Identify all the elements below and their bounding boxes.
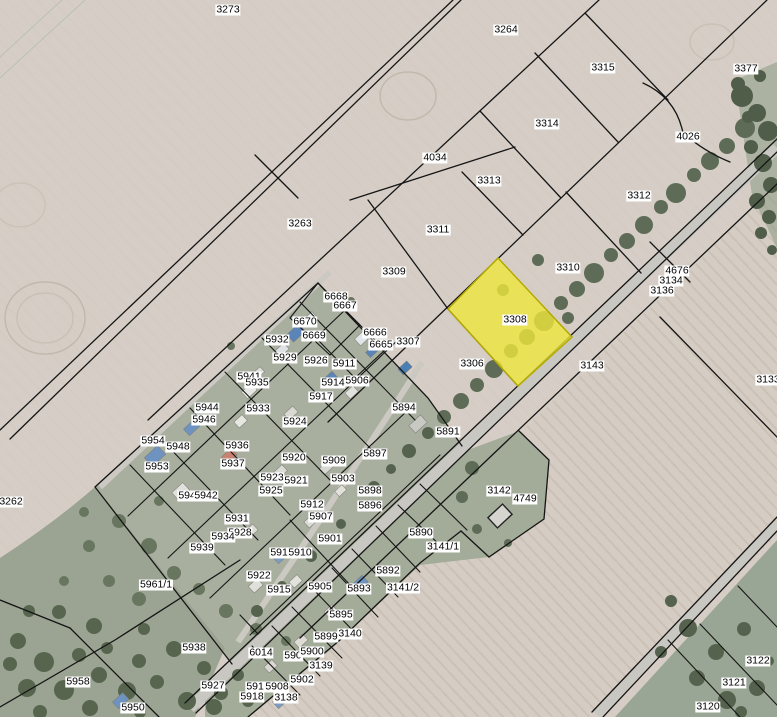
parcel-label-5895[interactable]: 5895	[328, 610, 353, 621]
parcel-label-5961/1[interactable]: 5961/1	[139, 580, 173, 591]
parcel-label-5946[interactable]: 5946	[191, 415, 216, 426]
parcel-label-5917[interactable]: 5917	[308, 392, 333, 403]
parcel-label-3141/1[interactable]: 3141/1	[426, 542, 460, 553]
parcel-label-4026[interactable]: 4026	[675, 132, 700, 143]
parcel-label-6669[interactable]: 6669	[301, 331, 326, 342]
parcel-label-3306[interactable]: 3306	[459, 359, 484, 370]
parcel-label-5903[interactable]: 5903	[330, 474, 355, 485]
parcel-label-5893[interactable]: 5893	[346, 584, 371, 595]
parcel-label-3307[interactable]: 3307	[395, 337, 420, 348]
parcel-label-5892[interactable]: 5892	[375, 566, 400, 577]
parcel-label-5950[interactable]: 5950	[120, 703, 145, 714]
parcel-label-3312[interactable]: 3312	[626, 191, 651, 202]
parcel-label-5905[interactable]: 5905	[307, 582, 332, 593]
parcel-label-3310[interactable]: 3310	[555, 263, 580, 274]
parcel-label-5953[interactable]: 5953	[144, 462, 169, 473]
parcel-label-3133[interactable]: 3133	[755, 375, 777, 386]
parcel-label-3273[interactable]: 3273	[215, 5, 240, 16]
parcel-label-5901[interactable]: 5901	[317, 534, 342, 545]
parcel-label-3314[interactable]: 3314	[534, 119, 559, 130]
parcel-label-5909[interactable]: 5909	[321, 456, 346, 467]
parcel-label-5912[interactable]: 5912	[299, 500, 324, 511]
parcel-label-5933[interactable]: 5933	[245, 404, 270, 415]
parcel-label-5948[interactable]: 5948	[165, 442, 190, 453]
parcel-label-5911[interactable]: 5911	[332, 359, 357, 370]
parcel-label-6665[interactable]: 6665	[368, 340, 393, 351]
parcel-label-3140[interactable]: 3140	[337, 629, 362, 640]
parcel-label-5899[interactable]: 5899	[313, 632, 338, 643]
parcel-label-5910[interactable]: 5910	[287, 548, 312, 559]
parcel-label-3136[interactable]: 3136	[649, 286, 674, 297]
parcel-label-5891[interactable]: 5891	[435, 427, 460, 438]
parcel-label-3315[interactable]: 3315	[590, 63, 615, 74]
parcel-label-5958[interactable]: 5958	[65, 677, 90, 688]
parcel-label-5907[interactable]: 5907	[308, 512, 333, 523]
parcel-label-5897[interactable]: 5897	[362, 449, 387, 460]
parcel-label-4749[interactable]: 4749	[512, 494, 537, 505]
parcel-label-5935[interactable]: 5935	[244, 378, 269, 389]
parcel-label-6667[interactable]: 6667	[332, 301, 357, 312]
parcel-label-5925[interactable]: 5925	[258, 486, 283, 497]
parcel-label-3308[interactable]: 3308	[502, 315, 527, 326]
parcel-label-5942[interactable]: 5942	[193, 491, 218, 502]
parcel-label-3138[interactable]: 3138	[273, 693, 298, 704]
parcel-label-5920[interactable]: 5920	[281, 453, 306, 464]
parcel-label-5922[interactable]: 5922	[246, 571, 271, 582]
parcel-label-5902[interactable]: 5902	[289, 675, 314, 686]
parcel-label-3309[interactable]: 3309	[381, 267, 406, 278]
parcel-label-4034[interactable]: 4034	[422, 153, 447, 164]
parcel-label-3142[interactable]: 3142	[486, 486, 511, 497]
parcel-labels-layer: 3273326433153377331440264034331333123263…	[0, 0, 777, 717]
parcel-label-5944[interactable]: 5944	[194, 403, 219, 414]
parcel-label-3141/2[interactable]: 3141/2	[386, 583, 420, 594]
parcel-label-3121[interactable]: 3121	[721, 678, 746, 689]
cadastral-map-canvas[interactable]: 3273326433153377331440264034331333123263…	[0, 0, 777, 717]
parcel-label-5926[interactable]: 5926	[303, 356, 328, 367]
parcel-label-5936[interactable]: 5936	[224, 441, 249, 452]
parcel-label-5939[interactable]: 5939	[189, 543, 214, 554]
parcel-label-3143[interactable]: 3143	[579, 361, 604, 372]
parcel-label-3313[interactable]: 3313	[476, 176, 501, 187]
parcel-label-5931[interactable]: 5931	[224, 514, 249, 525]
parcel-label-5914[interactable]: 5914	[320, 378, 345, 389]
parcel-label-5915[interactable]: 5915	[266, 585, 291, 596]
parcel-label-3377[interactable]: 3377	[733, 64, 758, 75]
parcel-label-5894[interactable]: 5894	[391, 403, 416, 414]
parcel-label-5954[interactable]: 5954	[140, 436, 165, 447]
parcel-label-5898[interactable]: 5898	[357, 486, 382, 497]
parcel-label-5927[interactable]: 5927	[200, 681, 225, 692]
parcel-label-3122[interactable]: 3122	[745, 656, 770, 667]
parcel-label-5900[interactable]: 5900	[299, 647, 324, 658]
parcel-label-5921[interactable]: 5921	[283, 476, 308, 487]
parcel-label-5932[interactable]: 5932	[264, 335, 289, 346]
parcel-label-3262[interactable]: 3262	[0, 497, 24, 508]
parcel-label-6014[interactable]: 6014	[248, 648, 273, 659]
parcel-label-6670[interactable]: 6670	[292, 317, 317, 328]
parcel-label-3311[interactable]: 3311	[426, 225, 451, 236]
parcel-label-5890[interactable]: 5890	[408, 528, 433, 539]
parcel-label-3264[interactable]: 3264	[493, 25, 518, 36]
parcel-label-5937[interactable]: 5937	[220, 459, 245, 470]
parcel-label-5938[interactable]: 5938	[181, 643, 206, 654]
parcel-label-3120[interactable]: 3120	[695, 702, 720, 713]
parcel-label-3263[interactable]: 3263	[287, 219, 312, 230]
parcel-label-5896[interactable]: 5896	[357, 501, 382, 512]
parcel-label-3139[interactable]: 3139	[308, 661, 333, 672]
parcel-label-6666[interactable]: 6666	[362, 328, 387, 339]
parcel-label-5924[interactable]: 5924	[282, 417, 307, 428]
parcel-label-5923[interactable]: 5923	[259, 473, 284, 484]
parcel-label-5906[interactable]: 5906	[344, 376, 369, 387]
parcel-label-5934[interactable]: 5934	[210, 532, 235, 543]
parcel-label-5929[interactable]: 5929	[272, 353, 297, 364]
parcel-label-5918[interactable]: 5918	[239, 692, 264, 703]
